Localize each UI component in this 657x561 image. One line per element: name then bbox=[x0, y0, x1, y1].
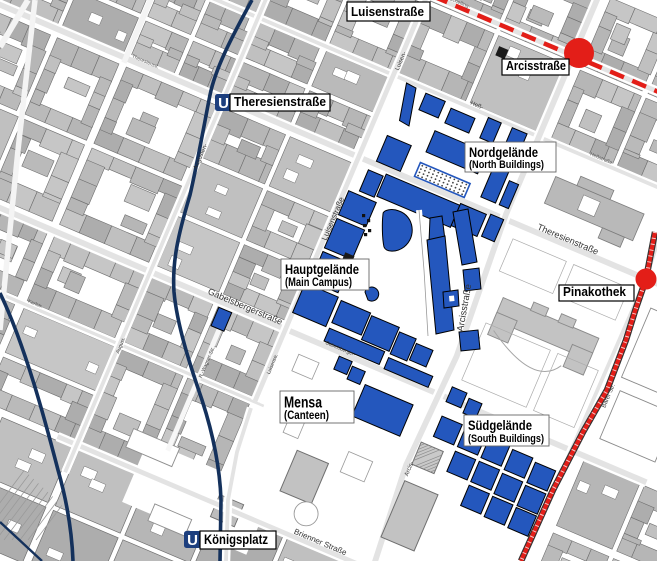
svg-text:Theresienstraße: Theresienstraße bbox=[234, 94, 326, 109]
svg-text:Südgelände: Südgelände bbox=[468, 417, 532, 433]
svg-text:Königsplatz: Königsplatz bbox=[204, 532, 268, 547]
svg-text:Pinakothek: Pinakothek bbox=[563, 284, 627, 299]
svg-text:Hauptgelände: Hauptgelände bbox=[285, 261, 359, 277]
svg-text:(Canteen): (Canteen) bbox=[284, 408, 329, 422]
svg-text:(Main Campus): (Main Campus) bbox=[285, 277, 352, 289]
svg-text:Nordgelände: Nordgelände bbox=[469, 144, 538, 160]
svg-text:Arcisstraße: Arcisstraße bbox=[506, 59, 566, 73]
svg-text:Luisenstraße: Luisenstraße bbox=[351, 4, 424, 19]
svg-text:(North Buildings): (North Buildings) bbox=[469, 159, 544, 171]
svg-text:U: U bbox=[187, 532, 198, 549]
svg-text:U: U bbox=[218, 95, 229, 112]
svg-text:(South Buildings): (South Buildings) bbox=[468, 433, 544, 445]
